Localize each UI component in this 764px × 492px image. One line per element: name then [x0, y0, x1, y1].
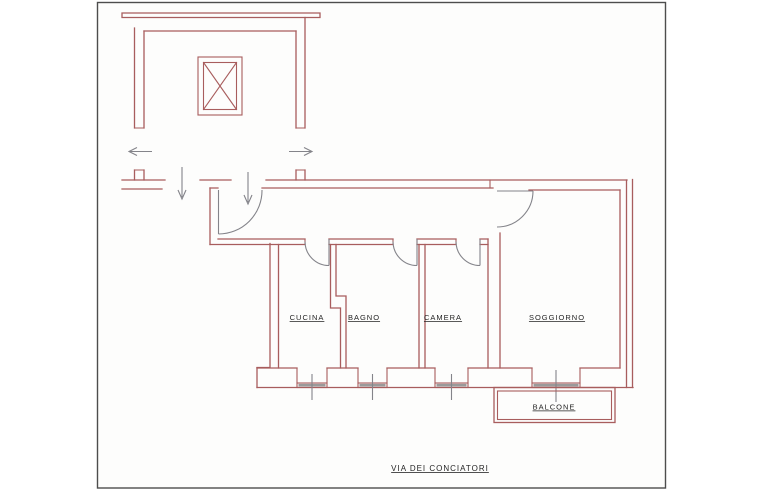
- floor-plan-page: CUCINA BAGNO CAMERA SOGGIORNO BALCONE VI…: [0, 0, 764, 492]
- floor-plan-svg: CUCINA BAGNO CAMERA SOGGIORNO BALCONE VI…: [0, 0, 764, 492]
- room-label-soggiorno: SOGGIORNO: [529, 313, 585, 322]
- paper-sheet: [98, 3, 666, 489]
- room-label-bagno: BAGNO: [348, 313, 380, 322]
- frame-border: [98, 3, 666, 489]
- room-label-camera: CAMERA: [424, 313, 462, 322]
- room-label-cucina: CUCINA: [290, 313, 325, 322]
- street-label: VIA DEI CONCIATORI: [391, 464, 489, 473]
- balcony-label: BALCONE: [533, 403, 576, 412]
